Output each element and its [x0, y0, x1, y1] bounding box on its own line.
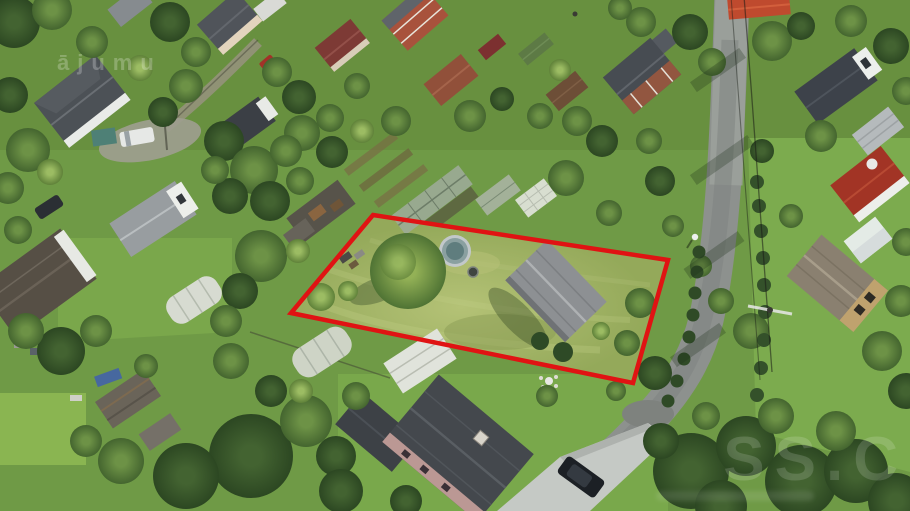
- utility-pole: [767, 307, 773, 313]
- conifer: [531, 332, 549, 350]
- utility-pole: [573, 12, 578, 17]
- shed-teal: [91, 127, 117, 146]
- aerial-photo-scene: [0, 0, 910, 511]
- aerial-photo-container: ājumu SS.C: [0, 0, 910, 511]
- fire-barrel: [468, 267, 478, 277]
- satellite-dish: [867, 159, 878, 170]
- lawn-bottom-left: [0, 393, 86, 465]
- conifer: [553, 342, 573, 362]
- watermark-subline-blur: [656, 491, 814, 501]
